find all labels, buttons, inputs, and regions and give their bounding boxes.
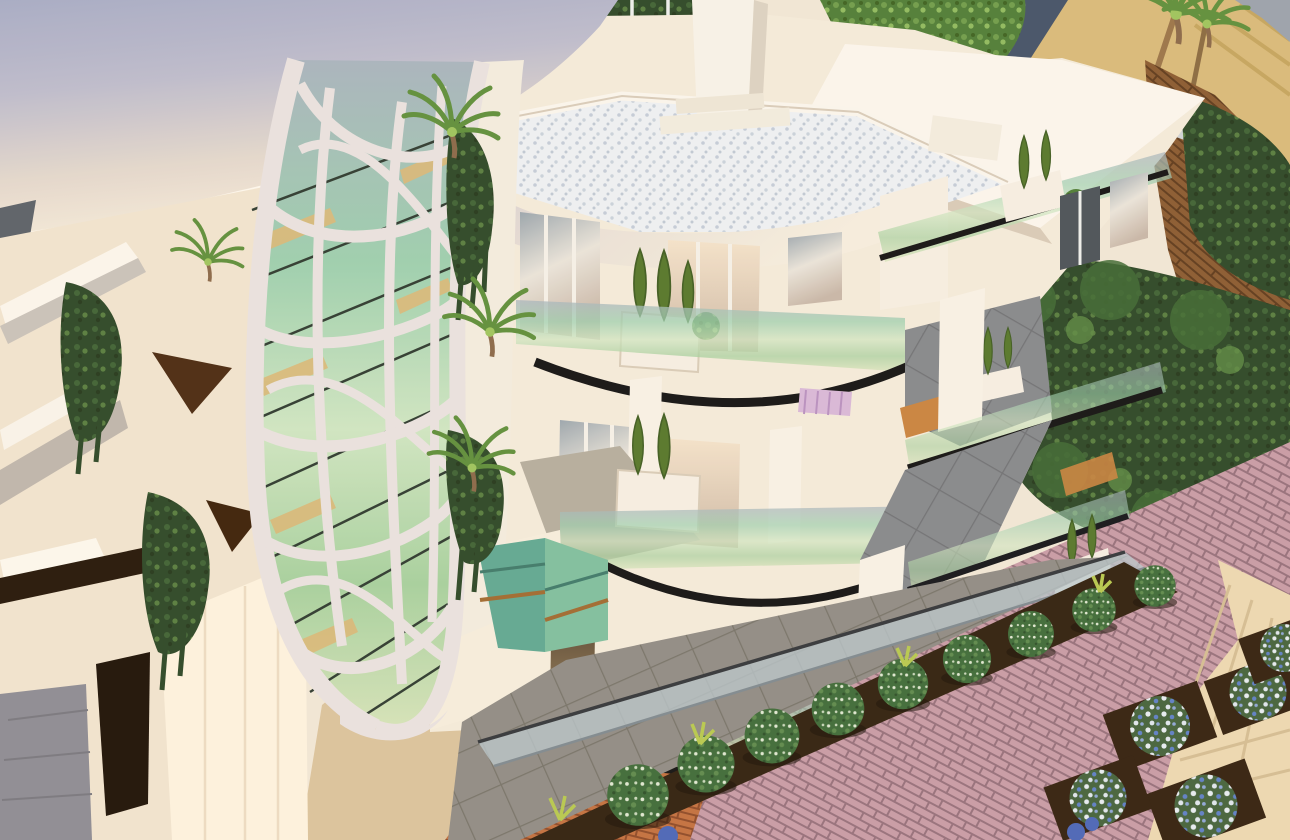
architectural-render-image bbox=[0, 0, 1290, 840]
sunset-light-overlay bbox=[0, 0, 1290, 840]
render-canvas bbox=[0, 0, 1290, 840]
